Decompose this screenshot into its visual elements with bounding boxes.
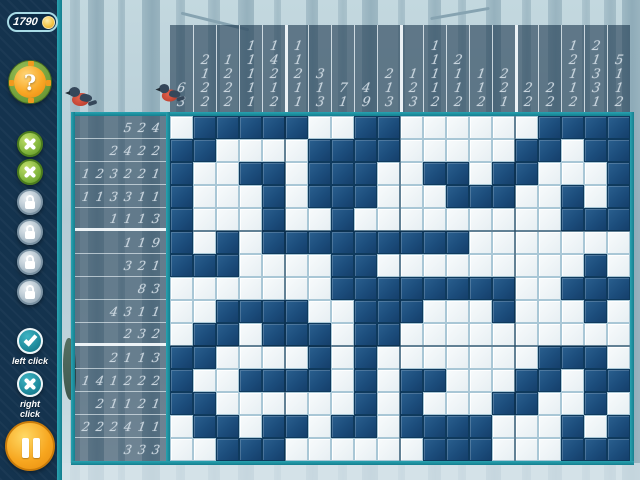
grid-cell[interactable] xyxy=(170,392,193,415)
grid-cell[interactable] xyxy=(331,438,354,461)
grid-cell[interactable] xyxy=(400,323,423,346)
grid-cell[interactable] xyxy=(285,392,308,415)
grid-cell[interactable] xyxy=(216,185,239,208)
grid-cell[interactable] xyxy=(331,323,354,346)
grid-cell[interactable] xyxy=(354,254,377,277)
grid-cell[interactable] xyxy=(515,415,538,438)
grid-cell[interactable] xyxy=(262,438,285,461)
grid-cell[interactable] xyxy=(285,415,308,438)
grid-cell[interactable] xyxy=(400,185,423,208)
grid-cell[interactable] xyxy=(538,116,561,139)
grid-cell[interactable] xyxy=(469,254,492,277)
grid-cell[interactable] xyxy=(400,254,423,277)
grid-cell[interactable] xyxy=(377,277,400,300)
grid-cell[interactable] xyxy=(584,300,607,323)
grid-cell[interactable] xyxy=(170,415,193,438)
grid-cell[interactable] xyxy=(239,162,262,185)
grid-cell[interactable] xyxy=(193,185,216,208)
grid-cell[interactable] xyxy=(584,185,607,208)
grid-cell[interactable] xyxy=(331,277,354,300)
grid-cell[interactable] xyxy=(538,369,561,392)
grid-cell[interactable] xyxy=(285,277,308,300)
grid-cell[interactable] xyxy=(377,139,400,162)
grid-cell[interactable] xyxy=(354,415,377,438)
grid-cell[interactable] xyxy=(400,300,423,323)
grid-cell[interactable] xyxy=(446,438,469,461)
grid-cell[interactable] xyxy=(400,392,423,415)
grid-cell[interactable] xyxy=(308,323,331,346)
grid-cell[interactable] xyxy=(515,116,538,139)
grid-cell[interactable] xyxy=(561,392,584,415)
locked-bonus-button[interactable] xyxy=(17,219,43,245)
grid-cell[interactable] xyxy=(308,162,331,185)
grid-cell[interactable] xyxy=(285,162,308,185)
grid-cell[interactable] xyxy=(216,139,239,162)
grid-cell[interactable] xyxy=(354,162,377,185)
grid-cell[interactable] xyxy=(239,323,262,346)
grid-cell[interactable] xyxy=(377,323,400,346)
grid-cell[interactable] xyxy=(584,392,607,415)
grid-cell[interactable] xyxy=(584,415,607,438)
grid-cell[interactable] xyxy=(561,415,584,438)
grid-cell[interactable] xyxy=(170,346,193,369)
grid-cell[interactable] xyxy=(170,162,193,185)
grid-cell[interactable] xyxy=(331,139,354,162)
grid-cell[interactable] xyxy=(515,277,538,300)
grid-cell[interactable] xyxy=(170,208,193,231)
grid-cell[interactable] xyxy=(423,392,446,415)
grid-cell[interactable] xyxy=(377,392,400,415)
grid-cell[interactable] xyxy=(492,208,515,231)
grid-cell[interactable] xyxy=(492,231,515,254)
grid-cell[interactable] xyxy=(308,369,331,392)
mistake-life-button[interactable] xyxy=(17,159,43,185)
grid-cell[interactable] xyxy=(469,139,492,162)
grid-cell[interactable] xyxy=(193,277,216,300)
grid-cell[interactable] xyxy=(584,231,607,254)
grid-cell[interactable] xyxy=(308,300,331,323)
grid-cell[interactable] xyxy=(308,139,331,162)
grid-cell[interactable] xyxy=(354,300,377,323)
grid-cell[interactable] xyxy=(285,208,308,231)
grid-cell[interactable] xyxy=(170,139,193,162)
grid-cell[interactable] xyxy=(607,369,630,392)
grid-cell[interactable] xyxy=(492,346,515,369)
grid-cell[interactable] xyxy=(400,116,423,139)
grid-cell[interactable] xyxy=(515,254,538,277)
grid-cell[interactable] xyxy=(584,208,607,231)
grid-cell[interactable] xyxy=(285,346,308,369)
grid-cell[interactable] xyxy=(170,323,193,346)
grid-cell[interactable] xyxy=(193,392,216,415)
grid-cell[interactable] xyxy=(515,438,538,461)
grid-cell[interactable] xyxy=(170,185,193,208)
grid-cell[interactable] xyxy=(354,185,377,208)
grid-cell[interactable] xyxy=(446,369,469,392)
grid-cell[interactable] xyxy=(607,254,630,277)
grid-cell[interactable] xyxy=(469,415,492,438)
grid-cell[interactable] xyxy=(423,300,446,323)
grid-cell[interactable] xyxy=(193,346,216,369)
grid-cell[interactable] xyxy=(308,231,331,254)
grid-cell[interactable] xyxy=(239,438,262,461)
grid-cell[interactable] xyxy=(216,346,239,369)
grid-cell[interactable] xyxy=(285,254,308,277)
grid-cell[interactable] xyxy=(607,438,630,461)
grid-cell[interactable] xyxy=(607,208,630,231)
grid-cell[interactable] xyxy=(262,323,285,346)
grid-cell[interactable] xyxy=(285,116,308,139)
grid-cell[interactable] xyxy=(446,139,469,162)
grid-cell[interactable] xyxy=(239,369,262,392)
grid-cell[interactable] xyxy=(354,277,377,300)
grid-cell[interactable] xyxy=(308,208,331,231)
grid-cell[interactable] xyxy=(492,277,515,300)
grid-cell[interactable] xyxy=(216,392,239,415)
grid-cell[interactable] xyxy=(515,208,538,231)
grid-cell[interactable] xyxy=(446,392,469,415)
grid-cell[interactable] xyxy=(400,415,423,438)
grid-cell[interactable] xyxy=(584,438,607,461)
grid-cell[interactable] xyxy=(400,231,423,254)
grid-cell[interactable] xyxy=(331,369,354,392)
grid-cell[interactable] xyxy=(492,254,515,277)
grid-cell[interactable] xyxy=(170,231,193,254)
grid-cell[interactable] xyxy=(469,116,492,139)
grid-cell[interactable] xyxy=(285,300,308,323)
grid-cell[interactable] xyxy=(561,277,584,300)
grid-cell[interactable] xyxy=(469,438,492,461)
grid-cell[interactable] xyxy=(285,323,308,346)
grid-cell[interactable] xyxy=(492,139,515,162)
grid-cell[interactable] xyxy=(193,415,216,438)
grid-cell[interactable] xyxy=(193,162,216,185)
grid-cell[interactable] xyxy=(308,254,331,277)
grid-cell[interactable] xyxy=(469,208,492,231)
grid-cell[interactable] xyxy=(262,300,285,323)
grid-cell[interactable] xyxy=(423,162,446,185)
grid-cell[interactable] xyxy=(262,392,285,415)
grid-cell[interactable] xyxy=(607,323,630,346)
grid-cell[interactable] xyxy=(170,369,193,392)
grid-cell[interactable] xyxy=(354,139,377,162)
grid-cell[interactable] xyxy=(354,369,377,392)
grid-cell[interactable] xyxy=(538,346,561,369)
grid-cell[interactable] xyxy=(193,116,216,139)
grid-cell[interactable] xyxy=(561,116,584,139)
grid-cell[interactable] xyxy=(469,346,492,369)
grid-cell[interactable] xyxy=(446,277,469,300)
grid-cell[interactable] xyxy=(193,323,216,346)
grid-cell[interactable] xyxy=(515,231,538,254)
locked-bonus-button[interactable] xyxy=(17,249,43,275)
grid-cell[interactable] xyxy=(446,162,469,185)
locked-bonus-button[interactable] xyxy=(17,189,43,215)
grid-cell[interactable] xyxy=(377,346,400,369)
grid-cell[interactable] xyxy=(216,369,239,392)
grid-cell[interactable] xyxy=(446,231,469,254)
grid-cell[interactable] xyxy=(216,300,239,323)
grid-cell[interactable] xyxy=(446,346,469,369)
grid-cell[interactable] xyxy=(354,323,377,346)
grid-cell[interactable] xyxy=(423,438,446,461)
grid-cell[interactable] xyxy=(469,185,492,208)
grid-cell[interactable] xyxy=(561,185,584,208)
grid-cell[interactable] xyxy=(331,162,354,185)
grid-cell[interactable] xyxy=(239,300,262,323)
grid-cell[interactable] xyxy=(331,116,354,139)
pause-button[interactable] xyxy=(5,421,55,471)
grid-cell[interactable] xyxy=(446,208,469,231)
grid-cell[interactable] xyxy=(377,438,400,461)
grid-cell[interactable] xyxy=(446,300,469,323)
grid-cell[interactable] xyxy=(423,254,446,277)
grid-cell[interactable] xyxy=(308,438,331,461)
grid-cell[interactable] xyxy=(216,208,239,231)
grid-cell[interactable] xyxy=(584,346,607,369)
grid-cell[interactable] xyxy=(515,139,538,162)
grid-cell[interactable] xyxy=(469,369,492,392)
grid-cell[interactable] xyxy=(446,185,469,208)
grid-cell[interactable] xyxy=(561,346,584,369)
grid-cell[interactable] xyxy=(193,208,216,231)
grid-cell[interactable] xyxy=(262,369,285,392)
grid-cell[interactable] xyxy=(469,300,492,323)
grid-cell[interactable] xyxy=(239,392,262,415)
grid-cell[interactable] xyxy=(262,277,285,300)
grid-cell[interactable] xyxy=(285,139,308,162)
grid-cell[interactable] xyxy=(216,277,239,300)
grid-cell[interactable] xyxy=(400,438,423,461)
hint-button[interactable]: ? xyxy=(8,60,52,104)
grid-cell[interactable] xyxy=(216,116,239,139)
grid-cell[interactable] xyxy=(515,162,538,185)
grid-cell[interactable] xyxy=(423,369,446,392)
grid-cell[interactable] xyxy=(561,208,584,231)
grid-cell[interactable] xyxy=(216,254,239,277)
grid-cell[interactable] xyxy=(538,438,561,461)
grid-cell[interactable] xyxy=(607,116,630,139)
grid-cell[interactable] xyxy=(170,277,193,300)
grid-cell[interactable] xyxy=(377,116,400,139)
grid-cell[interactable] xyxy=(515,369,538,392)
grid-cell[interactable] xyxy=(377,162,400,185)
grid-cell[interactable] xyxy=(538,208,561,231)
grid-cell[interactable] xyxy=(607,415,630,438)
grid-cell[interactable] xyxy=(584,162,607,185)
grid-cell[interactable] xyxy=(239,208,262,231)
grid-cell[interactable] xyxy=(492,300,515,323)
grid-cell[interactable] xyxy=(285,185,308,208)
grid-cell[interactable] xyxy=(607,139,630,162)
grid-cell[interactable] xyxy=(561,323,584,346)
grid-cell[interactable] xyxy=(308,392,331,415)
grid-cell[interactable] xyxy=(584,369,607,392)
grid-cell[interactable] xyxy=(423,415,446,438)
grid-cell[interactable] xyxy=(239,139,262,162)
grid-cell[interactable] xyxy=(308,116,331,139)
grid-cell[interactable] xyxy=(469,231,492,254)
grid-cell[interactable] xyxy=(469,162,492,185)
grid-cell[interactable] xyxy=(400,369,423,392)
grid-cell[interactable] xyxy=(538,300,561,323)
grid-cell[interactable] xyxy=(492,185,515,208)
grid-cell[interactable] xyxy=(423,139,446,162)
grid-cell[interactable] xyxy=(216,231,239,254)
grid-cell[interactable] xyxy=(538,254,561,277)
grid-cell[interactable] xyxy=(469,277,492,300)
grid-cell[interactable] xyxy=(354,208,377,231)
grid-cell[interactable] xyxy=(308,346,331,369)
grid-cell[interactable] xyxy=(446,323,469,346)
grid-cell[interactable] xyxy=(193,300,216,323)
grid-cell[interactable] xyxy=(538,231,561,254)
grid-cell[interactable] xyxy=(492,415,515,438)
grid-cell[interactable] xyxy=(285,369,308,392)
grid-cell[interactable] xyxy=(377,254,400,277)
grid-cell[interactable] xyxy=(354,346,377,369)
grid-cell[interactable] xyxy=(400,162,423,185)
grid-cell[interactable] xyxy=(331,392,354,415)
grid-cell[interactable] xyxy=(515,185,538,208)
grid-cell[interactable] xyxy=(515,300,538,323)
grid-cell[interactable] xyxy=(262,185,285,208)
grid-cell[interactable] xyxy=(193,231,216,254)
grid-cell[interactable] xyxy=(308,415,331,438)
grid-cell[interactable] xyxy=(607,392,630,415)
grid-cell[interactable] xyxy=(423,346,446,369)
grid-cell[interactable] xyxy=(170,116,193,139)
grid-cell[interactable] xyxy=(331,185,354,208)
grid-cell[interactable] xyxy=(607,346,630,369)
grid-cell[interactable] xyxy=(423,277,446,300)
grid-cell[interactable] xyxy=(216,415,239,438)
grid-cell[interactable] xyxy=(492,162,515,185)
grid-cell[interactable] xyxy=(446,116,469,139)
grid-cell[interactable] xyxy=(377,185,400,208)
grid-cell[interactable] xyxy=(262,139,285,162)
grid-cell[interactable] xyxy=(239,185,262,208)
grid-cell[interactable] xyxy=(538,323,561,346)
grid-cell[interactable] xyxy=(331,346,354,369)
grid-cell[interactable] xyxy=(561,300,584,323)
grid-cell[interactable] xyxy=(331,254,354,277)
grid-cell[interactable] xyxy=(492,116,515,139)
grid-cell[interactable] xyxy=(354,392,377,415)
grid-cell[interactable] xyxy=(354,231,377,254)
grid-cell[interactable] xyxy=(446,254,469,277)
grid-cell[interactable] xyxy=(170,438,193,461)
locked-bonus-button[interactable] xyxy=(17,279,43,305)
grid-cell[interactable] xyxy=(377,369,400,392)
grid-cell[interactable] xyxy=(561,162,584,185)
grid-cell[interactable] xyxy=(492,323,515,346)
grid-cell[interactable] xyxy=(607,277,630,300)
grid-cell[interactable] xyxy=(584,116,607,139)
grid-cell[interactable] xyxy=(216,323,239,346)
grid-cell[interactable] xyxy=(239,277,262,300)
grid-cell[interactable] xyxy=(446,415,469,438)
grid-cell[interactable] xyxy=(354,116,377,139)
grid-cell[interactable] xyxy=(538,139,561,162)
grid-cell[interactable] xyxy=(400,277,423,300)
grid-cell[interactable] xyxy=(492,392,515,415)
grid-cell[interactable] xyxy=(561,438,584,461)
grid-cell[interactable] xyxy=(377,300,400,323)
grid-cell[interactable] xyxy=(400,208,423,231)
grid-cell[interactable] xyxy=(515,346,538,369)
grid-cell[interactable] xyxy=(423,208,446,231)
grid-cell[interactable] xyxy=(423,185,446,208)
grid-cell[interactable] xyxy=(170,254,193,277)
grid-cell[interactable] xyxy=(193,369,216,392)
mistake-life-button[interactable] xyxy=(17,131,43,157)
grid-cell[interactable] xyxy=(262,162,285,185)
grid-cell[interactable] xyxy=(400,139,423,162)
grid-cell[interactable] xyxy=(354,438,377,461)
grid-cell[interactable] xyxy=(538,415,561,438)
grid-cell[interactable] xyxy=(538,185,561,208)
grid-cell[interactable] xyxy=(331,208,354,231)
grid-cell[interactable] xyxy=(262,231,285,254)
grid-cell[interactable] xyxy=(584,254,607,277)
grid-cell[interactable] xyxy=(584,139,607,162)
grid-cell[interactable] xyxy=(515,392,538,415)
grid-cell[interactable] xyxy=(285,231,308,254)
grid-cell[interactable] xyxy=(423,231,446,254)
grid-cell[interactable] xyxy=(561,369,584,392)
grid-cell[interactable] xyxy=(193,254,216,277)
grid-cell[interactable] xyxy=(239,346,262,369)
grid-cell[interactable] xyxy=(607,231,630,254)
grid-cell[interactable] xyxy=(492,438,515,461)
grid-cell[interactable] xyxy=(239,231,262,254)
grid-cell[interactable] xyxy=(538,392,561,415)
grid-cell[interactable] xyxy=(262,346,285,369)
grid-cell[interactable] xyxy=(423,323,446,346)
grid-cell[interactable] xyxy=(331,415,354,438)
grid-cell[interactable] xyxy=(216,162,239,185)
grid-cell[interactable] xyxy=(492,369,515,392)
grid-cell[interactable] xyxy=(377,415,400,438)
grid-cell[interactable] xyxy=(377,231,400,254)
grid-cell[interactable] xyxy=(469,323,492,346)
grid-cell[interactable] xyxy=(262,208,285,231)
grid-cell[interactable] xyxy=(285,438,308,461)
grid-cell[interactable] xyxy=(423,116,446,139)
grid-cell[interactable] xyxy=(308,185,331,208)
grid-cell[interactable] xyxy=(239,254,262,277)
grid-cell[interactable] xyxy=(607,300,630,323)
grid-cell[interactable] xyxy=(607,162,630,185)
grid-cell[interactable] xyxy=(561,254,584,277)
grid-cell[interactable] xyxy=(538,162,561,185)
grid-cell[interactable] xyxy=(262,415,285,438)
grid-cell[interactable] xyxy=(538,277,561,300)
grid-cell[interactable] xyxy=(561,231,584,254)
grid-cell[interactable] xyxy=(170,300,193,323)
grid-cell[interactable] xyxy=(216,438,239,461)
grid-cell[interactable] xyxy=(262,116,285,139)
grid-cell[interactable] xyxy=(331,231,354,254)
grid-cell[interactable] xyxy=(193,139,216,162)
grid-cell[interactable] xyxy=(607,185,630,208)
grid-cell[interactable] xyxy=(308,277,331,300)
grid-cell[interactable] xyxy=(262,254,285,277)
grid-cell[interactable] xyxy=(193,438,216,461)
grid-cell[interactable] xyxy=(239,116,262,139)
grid-cell[interactable] xyxy=(331,300,354,323)
